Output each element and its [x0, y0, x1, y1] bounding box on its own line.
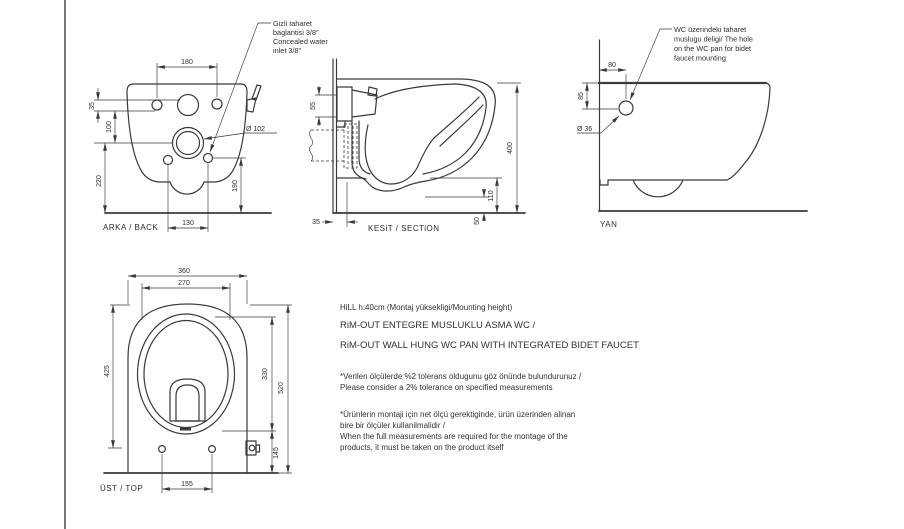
- dim-50: 50: [474, 217, 481, 225]
- fixing-hole-upper-right: [212, 99, 222, 109]
- fixing-hole-upper-left: [152, 100, 162, 110]
- pipe-break-symbol: [309, 130, 312, 161]
- dim-35-section: 35: [312, 219, 320, 226]
- dim-360: 360: [178, 268, 190, 275]
- back-view-label: ARKA / BACK: [103, 223, 158, 232]
- bowl-basin: [365, 125, 434, 184]
- annotation-bidet-hole-line2: muslugu deligi/ The hole: [674, 35, 753, 44]
- dim-520: 520: [278, 382, 285, 394]
- dim-dia-36: Ø 36: [577, 126, 592, 133]
- dim-dia-102: Ø 102: [246, 126, 265, 133]
- tolerance-note: *Verilen ölçülerde %2 tolerans oldugunu …: [340, 371, 581, 393]
- product-title-en: RiM-OUT WALL HUNG WC PAN WITH INTEGRATED…: [340, 340, 639, 351]
- section-view: 55 35 400 110 50 KESiT / SECTiON: [309, 59, 525, 233]
- dim-425: 425: [104, 365, 111, 377]
- dim-55: 55: [310, 102, 317, 110]
- dim-190: 190: [232, 180, 239, 192]
- dim-35-back: 35: [89, 102, 96, 110]
- dim-100: 100: [106, 121, 113, 133]
- water-inlet-hole-left: [164, 156, 173, 165]
- annotation-water-inlet-line3: Concealed water: [273, 37, 328, 46]
- dim-85: 85: [578, 92, 585, 100]
- montage-note-en2: products, it must be taken on the produc…: [340, 442, 575, 453]
- dim-155: 155: [181, 481, 193, 488]
- note-mounting-height: HiLL h:40cm (Montaj yüksekligi/Mounting …: [340, 302, 512, 313]
- mounting-hole-right: [209, 446, 216, 453]
- technical-drawing-sheet: 180 35 100 220 190 130 Ø 102 Gizli tahar…: [0, 0, 904, 529]
- dim-270: 270: [178, 280, 190, 287]
- drain-hole-outer: [173, 128, 204, 159]
- montage-note-en1: When the full measurements are required …: [340, 431, 575, 442]
- nozzle-outlet-mark: [180, 427, 191, 431]
- annotation-water-inlet-line4: inlet 3/8": [273, 46, 302, 55]
- montage-note-tr2: bire bir ölçüler kullanilmalidir /: [340, 420, 575, 431]
- dim-180: 180: [181, 59, 193, 66]
- bidet-nozzle-housing-inner: [176, 385, 199, 421]
- annotation-bidet-hole-line4: faucet mounting: [674, 54, 726, 63]
- dim-80: 80: [608, 62, 616, 69]
- mounting-hole-left: [159, 446, 166, 453]
- side-view: 80 85 Ø 36 WC üzerindeki taharet muslugu…: [577, 25, 807, 229]
- annotation-water-inlet-line1: Gizli taharet: [273, 19, 312, 28]
- inlet-valve-fitting: [247, 85, 261, 112]
- annotation-bidet-hole-line3: on the WC pan for bidet: [674, 44, 751, 53]
- seat-ring-outer: [138, 314, 235, 434]
- tolerance-note-en: Please consider a 2% tolerance on specif…: [340, 382, 581, 393]
- bidet-faucet-hole: [619, 101, 633, 115]
- drain-hole-inner: [177, 132, 200, 155]
- montage-note-tr1: *Ürünlerin montaji için net ölçü gerekti…: [340, 409, 575, 420]
- annotation-water-inlet-line2: baglantisi 3/8": [273, 28, 319, 37]
- water-inlet-hole-right: [204, 154, 213, 163]
- side-view-label: YAN: [600, 220, 617, 229]
- top-view-label: ÜST / TOP: [100, 484, 143, 493]
- dim-400: 400: [507, 142, 514, 154]
- dim-110: 110: [488, 190, 495, 201]
- dim-220: 220: [96, 175, 103, 187]
- trap-bump-side: [633, 180, 683, 197]
- concealed-pipe-dashed: [311, 124, 357, 168]
- section-view-label: KESiT / SECTiON: [368, 224, 440, 233]
- montage-note: *Ürünlerin montaji için net ölçü gerekti…: [340, 409, 575, 453]
- pan-side-profile: [600, 83, 770, 185]
- pan-section-outer-profile: [337, 79, 495, 191]
- annotation-bidet-hole-line1: WC üzerindeki taharet: [674, 25, 746, 34]
- top-view: 360 270 425 330 145 520 155 ÜST / TOP: [100, 268, 292, 493]
- side-fitting-top-view: [246, 441, 260, 455]
- flush-inlet-box: [337, 87, 377, 127]
- dim-330: 330: [262, 368, 269, 380]
- seat-ring-inner: [144, 321, 228, 428]
- dim-130: 130: [182, 220, 194, 227]
- back-view: 180 35 100 220 190 130 Ø 102 Gizli tahar…: [89, 19, 328, 232]
- flush-inlet-hole: [178, 95, 199, 116]
- product-title-tr: RiM-OUT ENTEGRE MUSLUKLU ASMA WC /: [340, 320, 535, 331]
- tolerance-note-tr: *Verilen ölçülerde %2 tolerans oldugunu …: [340, 371, 581, 382]
- dim-145: 145: [273, 447, 280, 459]
